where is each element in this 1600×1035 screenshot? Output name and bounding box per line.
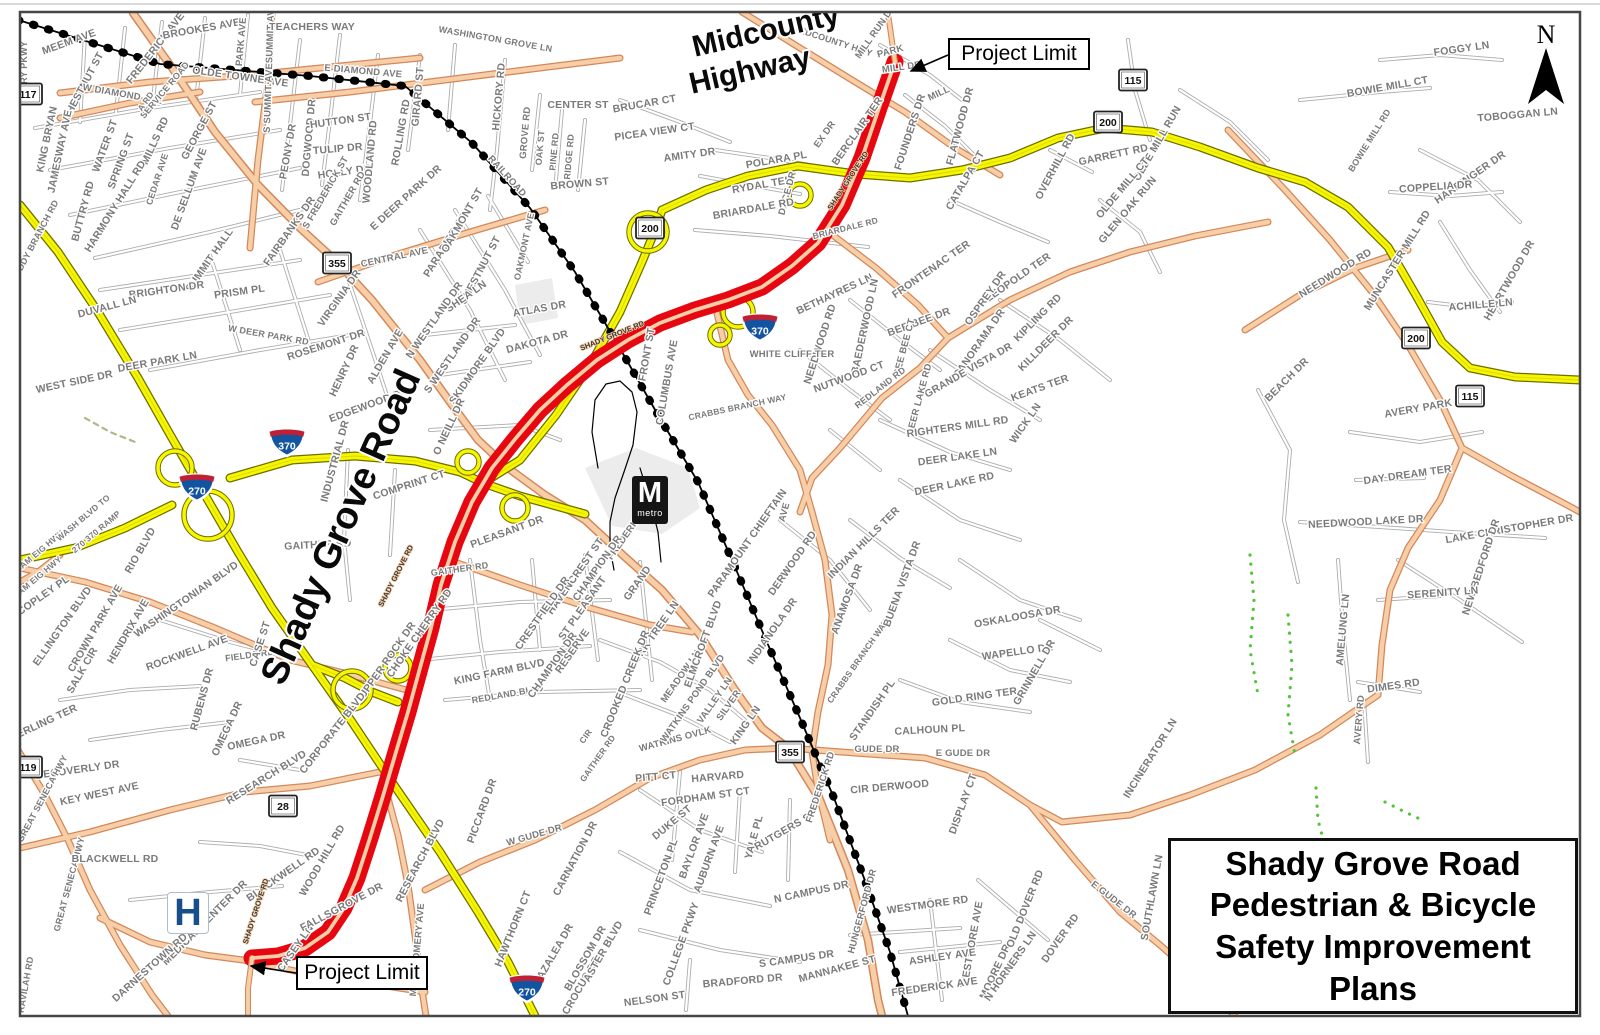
north-arrow-icon: N: [1524, 22, 1568, 111]
svg-text:355: 355: [781, 747, 799, 759]
route-road-label: SHADY GROVE RD: [376, 543, 415, 608]
road-label: OMEGA DR: [226, 729, 286, 753]
road-label: DERWOOD RD: [766, 529, 819, 598]
road-label: RIGHTERS MILL RD: [906, 414, 1010, 440]
road-label: INCINERATOR LN: [1121, 716, 1180, 800]
svg-text:370: 370: [751, 326, 769, 338]
road-label: E GUDE DR: [936, 748, 991, 759]
road-label: BEACH DR: [1262, 355, 1311, 404]
road-label: GROVE RD: [518, 106, 534, 159]
state-route-shield: 355: [776, 742, 804, 763]
svg-text:117: 117: [20, 89, 37, 101]
road-label: BUENA VISTA DR: [881, 539, 923, 628]
road-label: BLACKWELL RD: [72, 853, 159, 865]
project-limit-callout-south: Project Limit: [296, 956, 428, 990]
road-label: FRONTENAC TER: [890, 238, 973, 301]
road-label: BOWIE MILL CT: [1346, 74, 1430, 100]
road-label: BROWN ST: [550, 175, 610, 192]
north-label: N: [1524, 22, 1568, 48]
road-label: DEER LAKE LN: [917, 446, 998, 469]
north-arrow-glyph: [1524, 48, 1568, 106]
title-box: Shady Grove Road Pedestrian & Bicycle Sa…: [1168, 838, 1578, 1014]
state-route-shield: 28: [269, 796, 297, 817]
road-label: WHITE CLIFF TER: [750, 349, 835, 360]
road-label: KEATS TER: [1009, 372, 1070, 404]
road-label: S SUMMIT AVE: [262, 63, 275, 133]
svg-text:115: 115: [1462, 391, 1479, 403]
svg-text:355: 355: [328, 258, 346, 270]
state-route-shield: 200: [1402, 328, 1430, 349]
road-label: BRIARDALE RD: [812, 215, 880, 241]
road-label: CIR DERWOOD: [850, 778, 930, 797]
road-label: CENTRAL AVE: [360, 245, 429, 270]
road-label: GUDE DR: [854, 744, 899, 755]
road-label: CROOKED CREEK DR: [598, 628, 652, 739]
road-label: DOGWOOD DR: [300, 98, 319, 177]
svg-text:370: 370: [278, 441, 296, 453]
trail: [1288, 615, 1295, 755]
hospital-icon: H: [167, 892, 209, 934]
road-label: RIDGE RD: [562, 133, 576, 180]
title-line: Safety Improvement: [1215, 926, 1530, 968]
state-route-shield: 115: [1119, 70, 1147, 91]
state-route-shield: 200: [636, 218, 664, 239]
state-route-shield: 355: [323, 253, 351, 274]
minor-road: [1398, 560, 1522, 642]
road-label: BRADFORD DR: [702, 972, 783, 991]
road-label: CALHOUN PL: [894, 722, 966, 738]
project-limit-label: Project Limit: [961, 42, 1077, 66]
road-label: PICCARD DR: [465, 777, 500, 845]
road-label: WICK LN: [1007, 401, 1043, 446]
trail: [1250, 555, 1258, 695]
minor-road: [1258, 390, 1298, 582]
road-label: AMELUNG LN: [1334, 593, 1352, 666]
road-label: CRABBS BRANCH WAY: [687, 392, 787, 423]
road-label: PICEA VIEW CT: [614, 120, 696, 143]
minor-road: [950, 200, 1048, 242]
major-road: [255, 58, 620, 102]
road-label: COLUMBUS AVE: [654, 339, 681, 426]
major-road: [1030, 695, 1378, 822]
road-label: N CAMPUS DR: [773, 878, 850, 906]
title-line: Pedestrian & Bicycle: [1210, 884, 1537, 926]
svg-text:270: 270: [188, 486, 206, 498]
road-label: WOODLAND RD: [360, 120, 379, 204]
road-label: E DEER PARK DR: [368, 162, 444, 233]
title-line: Plans: [1329, 968, 1417, 1010]
map-plan-page: MEEM AVEPERRY PKWYCHESTNUT STFREDERICK A…: [0, 0, 1600, 1035]
road-label: NEEDWOOD RD: [1297, 246, 1374, 300]
road-label: BOWIE MILL RD: [1346, 107, 1393, 174]
major-road: [1030, 695, 1378, 822]
road-label: SOUTHLAWN LN: [1139, 854, 1166, 942]
major-road: [1462, 448, 1580, 512]
interstate-shield: 370: [268, 428, 306, 457]
svg-text:119: 119: [20, 762, 37, 774]
interstate-shield: 370: [741, 313, 779, 342]
road-label: RIO BLVD: [122, 525, 158, 575]
road-label: HENRY DR: [327, 343, 362, 399]
road-label: LAKE CHRISTOPHER DR: [1445, 512, 1575, 546]
road-label: GIRARD ST: [409, 66, 426, 127]
state-route-shield: 115: [1456, 386, 1484, 407]
svg-text:200: 200: [1099, 117, 1117, 129]
road-label: CENTER ST: [547, 99, 609, 111]
road-label: STERLING TER: [2, 702, 79, 747]
highway: [20, 205, 535, 1016]
road-label: TULIP DR: [312, 141, 363, 157]
metro-word: metro: [632, 508, 668, 518]
project-limit-callout-north: Project Limit: [948, 38, 1090, 70]
road-label: DEER LAKE RD: [913, 470, 995, 499]
road-label: PITT CT: [635, 769, 677, 785]
road-label: BRIARDALE RD: [712, 196, 795, 222]
road-label: HARVARD: [691, 769, 745, 786]
metro-station-icon: M metro: [632, 476, 668, 524]
minor-road: [90, 722, 230, 740]
road-label: COPPELIA DR: [1399, 178, 1473, 195]
title-line: Shady Grove Road: [1225, 843, 1520, 885]
state-route-shield: 200: [1094, 112, 1122, 133]
highway-ramp-loop: [457, 451, 479, 473]
road-label: AMITY DR: [663, 145, 717, 164]
road-label: RUBENS DR: [188, 666, 216, 731]
trail: [1385, 802, 1422, 820]
road-label: CIR: [577, 727, 594, 745]
road-label: EX DR: [812, 119, 838, 150]
road-label: STANDISH PL: [847, 677, 898, 743]
road-label: MILL: [926, 84, 951, 104]
svg-text:200: 200: [1407, 333, 1425, 345]
road-label: FREDERICK AVE: [891, 975, 979, 999]
road-label: DISPLAY CT: [947, 772, 980, 836]
road-label: KEY WEST AVE: [59, 780, 140, 808]
road-label: E GUDE DR: [1089, 879, 1139, 921]
road-label: DAY DREAM TER: [1363, 463, 1453, 487]
metro-m-glyph: M: [632, 478, 668, 508]
road-label: HUTTON ST: [309, 111, 372, 132]
svg-text:200: 200: [641, 223, 659, 235]
state-route-shield: 117: [14, 84, 42, 105]
hospital-h-glyph: H: [174, 894, 201, 932]
project-limit-label: Project Limit: [304, 961, 420, 985]
road-label: W GUDE DR: [505, 822, 563, 848]
svg-text:28: 28: [277, 801, 289, 813]
road-label: OAK ST: [533, 129, 546, 165]
svg-text:115: 115: [1125, 75, 1142, 87]
minor-road: [448, 45, 455, 130]
road-label: PRINCETON PL: [642, 837, 681, 917]
road-label: WESTMORE RD: [886, 893, 969, 916]
road-label: BRUCAR CT: [612, 92, 678, 115]
road-label: DEER PARK LN: [117, 349, 198, 375]
road-label: HAWTHORN CT: [492, 889, 534, 969]
state-route-shield: 119: [14, 757, 42, 778]
road-label: TEACHERS WAY: [269, 21, 355, 33]
road-label: NELSON ST: [623, 989, 686, 1010]
road-label: ACHILLE LN: [1448, 296, 1513, 314]
boundary-dashes: [85, 418, 135, 442]
trail: [1316, 788, 1322, 835]
road-label: NEEDWOOD RD: [802, 302, 839, 385]
road-label: ROCKWELL AVE: [144, 633, 229, 674]
interstate-shield: 270: [508, 974, 546, 1003]
road-label: WEST SIDE DR: [35, 368, 114, 396]
svg-text:270: 270: [518, 987, 536, 999]
road-label: TRAVILAH RD: [15, 956, 36, 1020]
